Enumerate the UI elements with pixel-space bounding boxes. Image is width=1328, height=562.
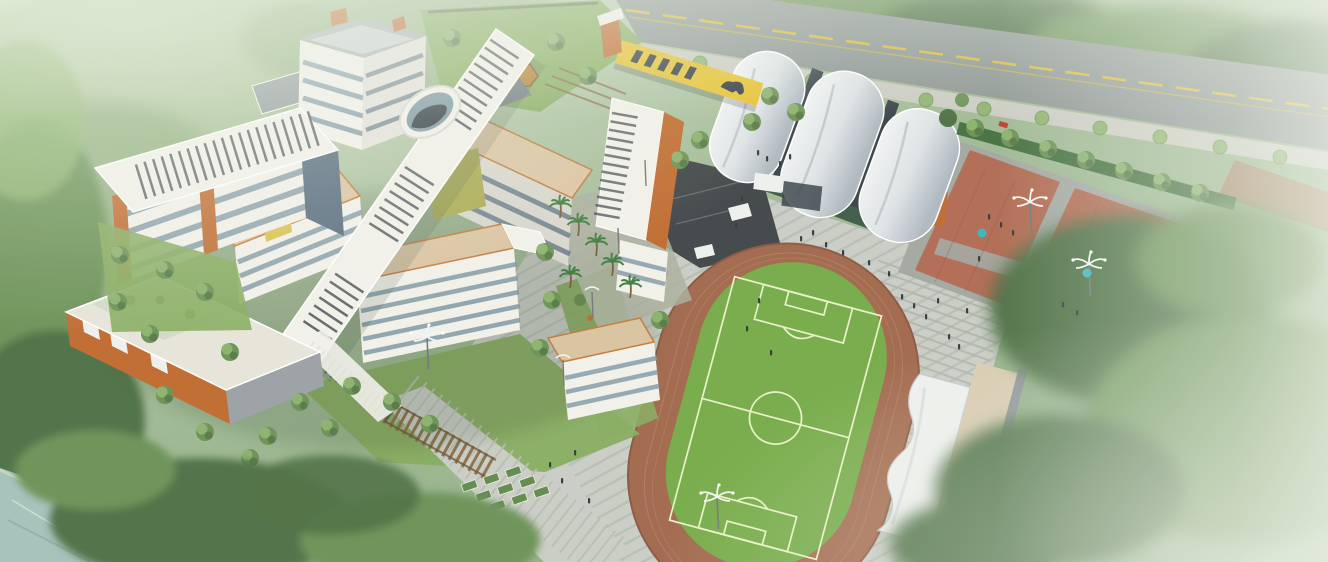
rendering-canvas: [0, 0, 1328, 562]
mist-overlays: [0, 0, 1328, 562]
campus-aerial-rendering: [0, 0, 1328, 562]
